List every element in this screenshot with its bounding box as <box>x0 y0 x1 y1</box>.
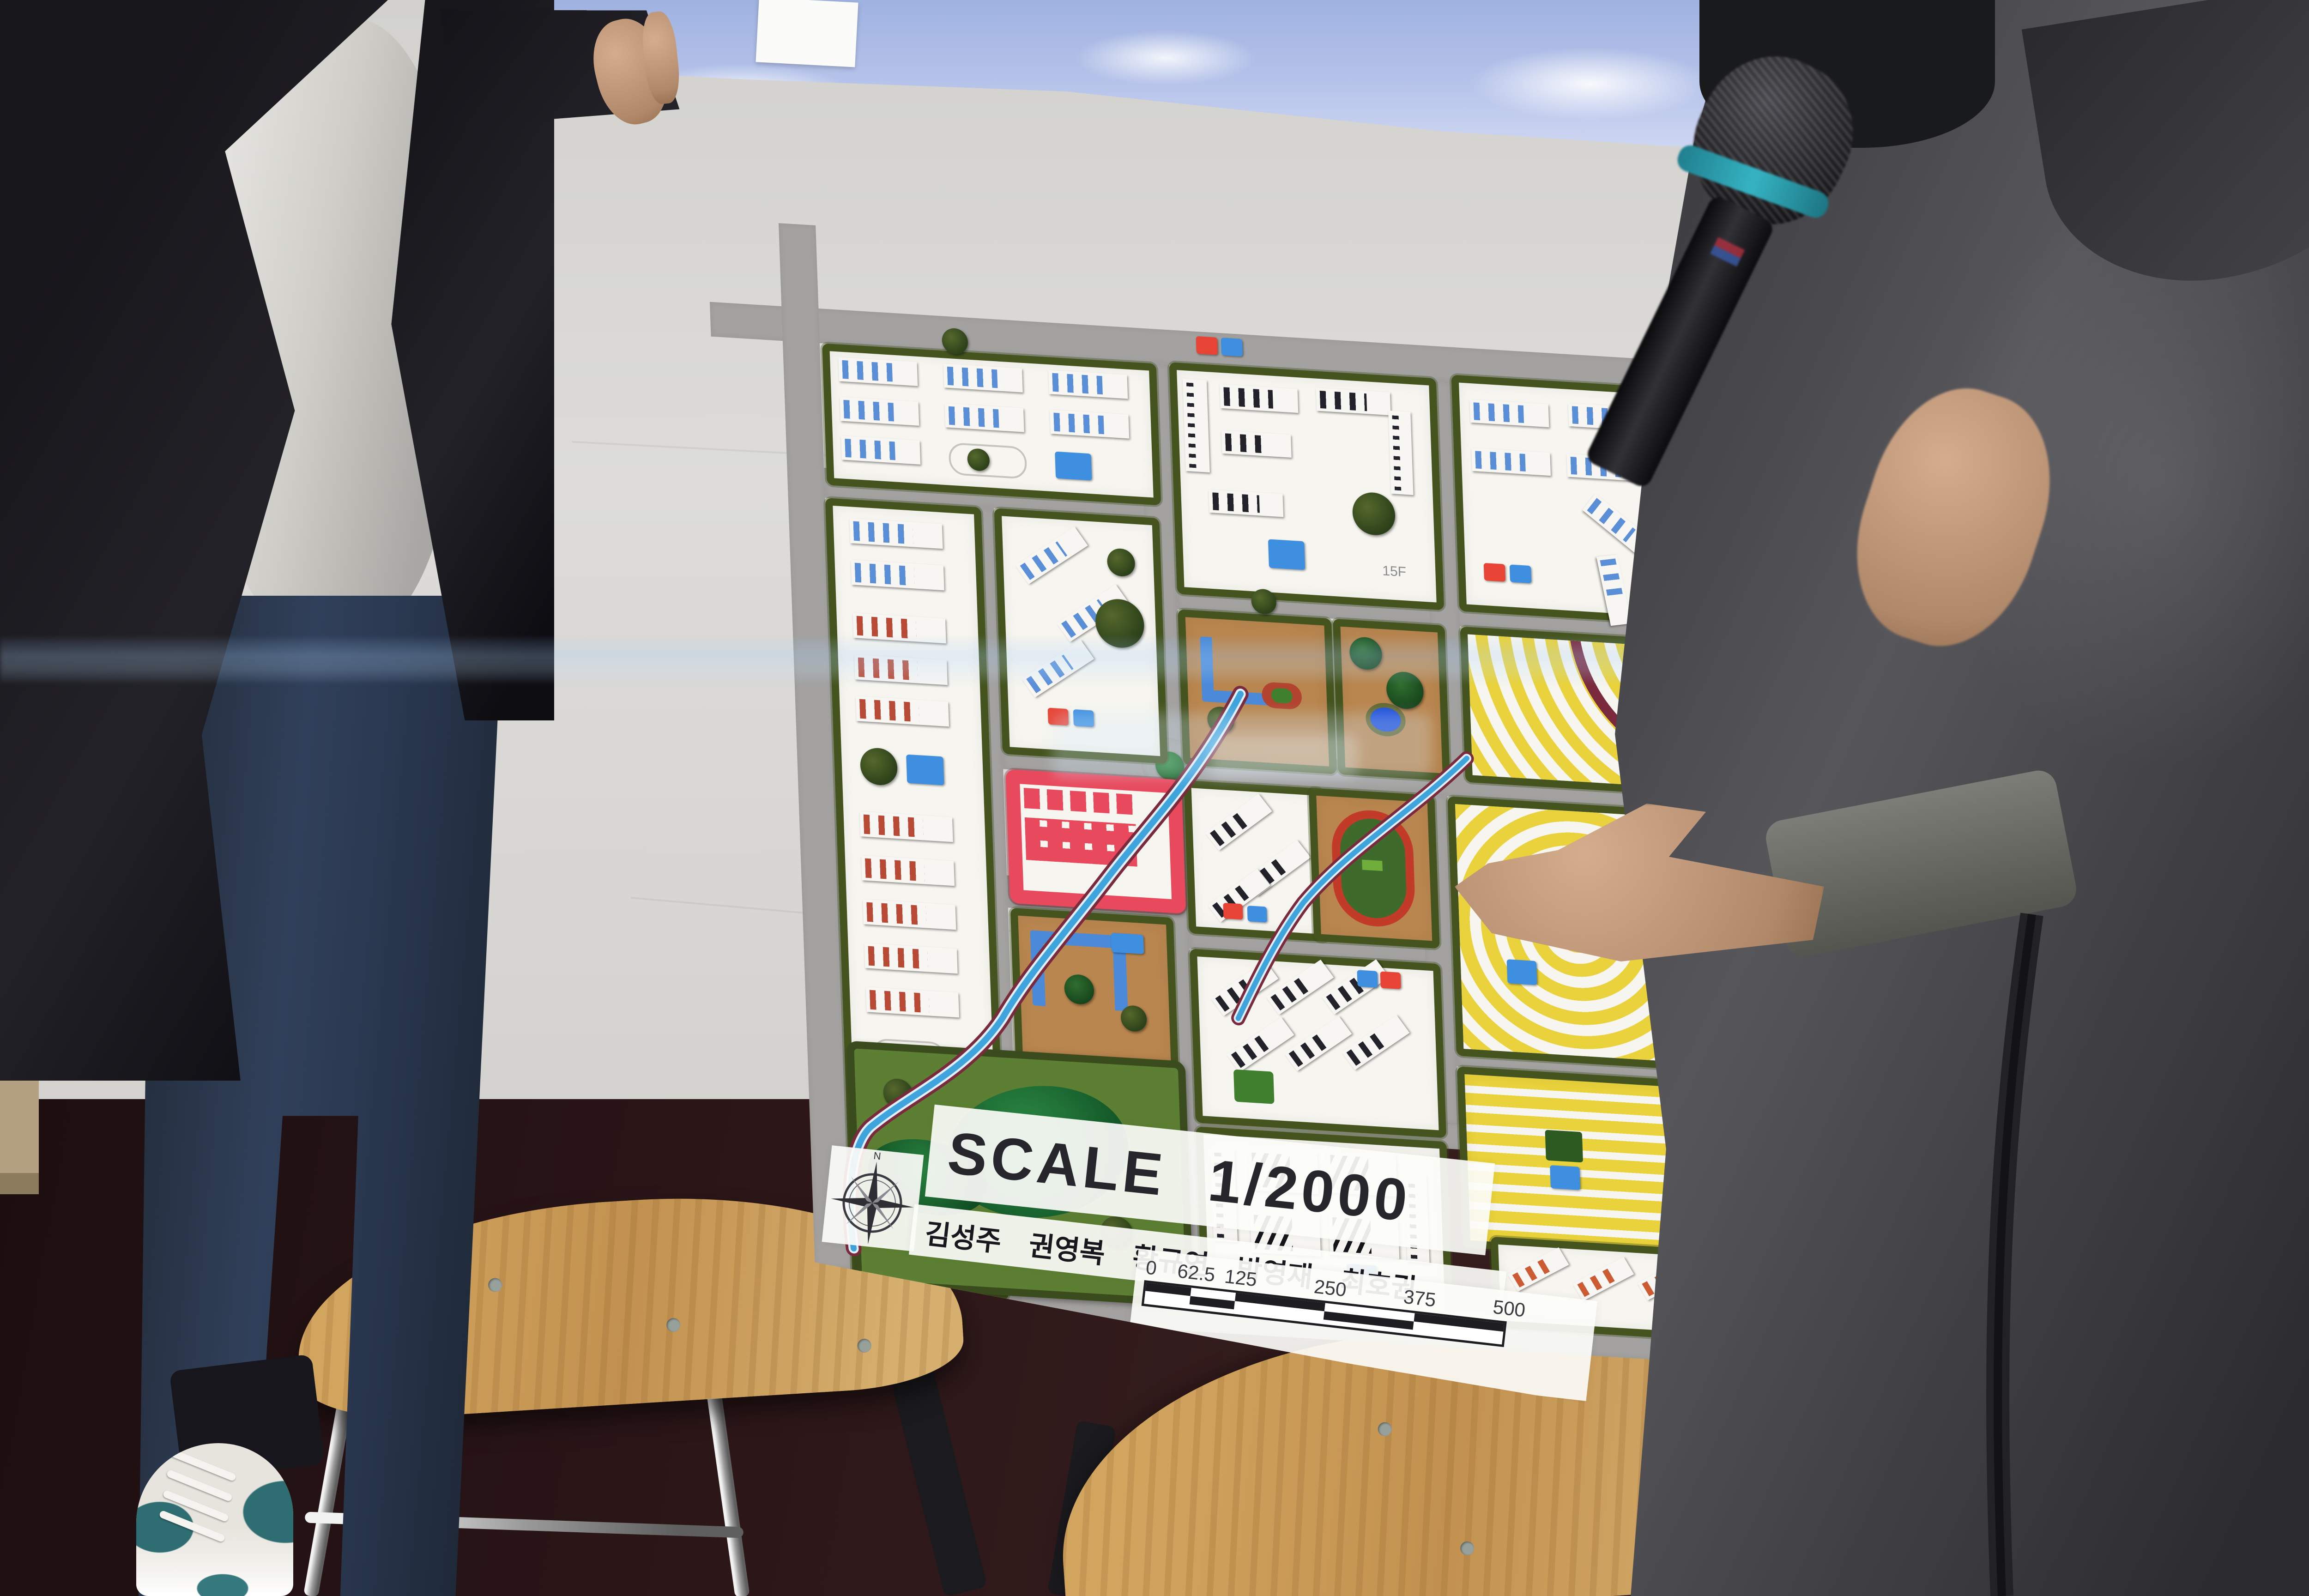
tick-label: 500 <box>1492 1296 1527 1322</box>
photo-scene: 15F 10F <box>0 0 2309 1596</box>
tick-label: 125 <box>1223 1265 1258 1291</box>
tick-label: 250 <box>1313 1276 1348 1301</box>
left-person-sneaker <box>136 1443 293 1596</box>
white-card <box>756 0 858 67</box>
seat-screw <box>857 1338 872 1353</box>
projector-glow <box>1210 734 1358 778</box>
seat-screw <box>488 1278 502 1293</box>
svg-text:N: N <box>873 1150 881 1162</box>
seat-screw <box>666 1318 681 1332</box>
seat-screw <box>1378 1422 1392 1437</box>
red-kiosk <box>1196 336 1218 355</box>
blue-kiosk <box>1221 338 1243 357</box>
coat-cord <box>1940 877 2124 1596</box>
tick-label: 62.5 <box>1176 1260 1216 1286</box>
compass-card: N <box>822 1145 924 1251</box>
tick-label: 0 <box>1145 1256 1158 1279</box>
compass-rose-icon: N <box>822 1145 924 1251</box>
tick-label: 375 <box>1402 1286 1437 1312</box>
seat-screw <box>1460 1541 1475 1556</box>
